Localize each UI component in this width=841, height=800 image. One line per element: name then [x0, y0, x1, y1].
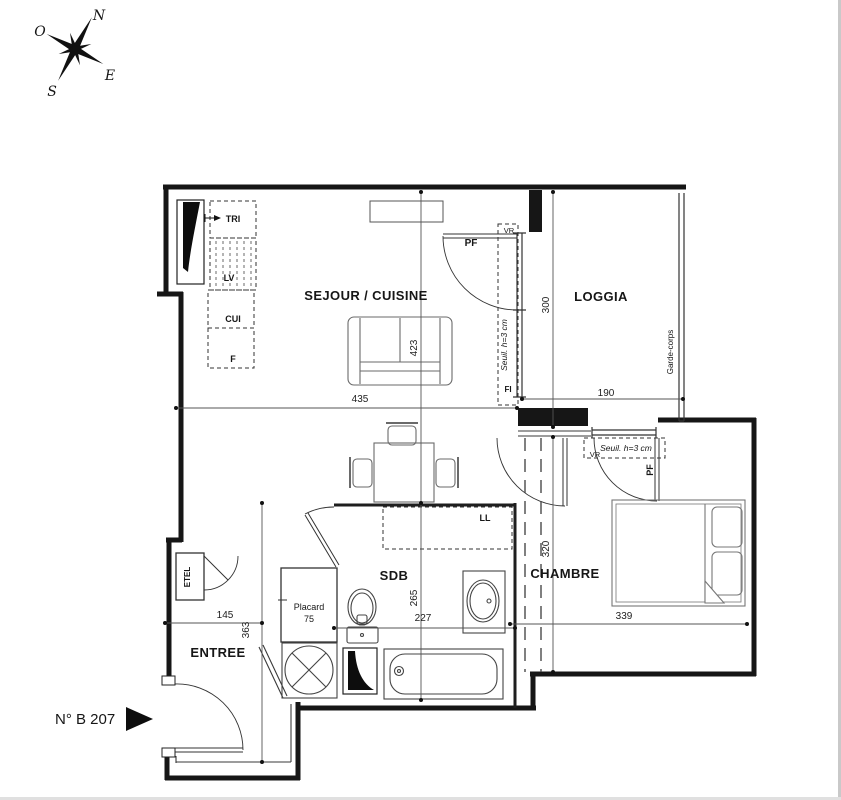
compass-south-label: S — [47, 84, 57, 100]
door-leaf-pf-chambre — [655, 438, 659, 501]
dim-chambre-width: 339 — [616, 611, 633, 622]
room-label-entree: ENTREE — [190, 645, 245, 660]
door-jamb-entrance-top — [162, 676, 175, 685]
garde-corps-railing — [679, 193, 684, 421]
label-tri: TRI — [226, 214, 241, 224]
door-leaf-entrance — [175, 748, 243, 752]
toilet — [347, 589, 378, 643]
door-arc-sdb — [305, 507, 334, 514]
label-vr-sejour: VR — [504, 226, 515, 235]
tri-chute-arrowhead — [214, 215, 221, 221]
ll-zone — [383, 507, 512, 549]
floor-plan-page: N O E S — [0, 0, 841, 800]
door-leaf-etel — [204, 556, 228, 580]
dim-loggia-height: 300 — [541, 296, 552, 313]
tri-chute-icon — [205, 214, 214, 222]
bed — [612, 500, 745, 606]
compass-west-label: O — [34, 24, 46, 40]
window-loggia-chambre — [592, 427, 656, 438]
radiator-sejour — [370, 201, 443, 222]
dim-loggia-width: 190 — [598, 388, 615, 399]
dimension-labels: 423 265 435 300 190 320 339 227 145 363 — [217, 296, 633, 638]
door-jamb-entrance-bottom — [162, 748, 175, 757]
label-seuil-sejour: Seuil. h=3 cm — [499, 319, 509, 371]
compass-north-label: N — [92, 8, 106, 24]
doors — [162, 234, 659, 757]
unit-arrow-icon — [126, 707, 153, 731]
label-ll: LL — [480, 513, 491, 523]
label-f: F — [230, 354, 236, 364]
chambre-soffit-dashes — [525, 438, 541, 672]
washbasin — [463, 571, 505, 633]
label-seuil-chambre: Seuil. h=3 cm — [600, 443, 652, 453]
label-pf-chambre: PF — [645, 464, 655, 476]
label-cui: CUI — [225, 314, 241, 324]
label-etel: ETEL — [183, 567, 192, 588]
dim-sdb-width: 227 — [415, 613, 432, 624]
closets — [176, 553, 337, 642]
blanket-fold — [705, 581, 724, 603]
thin-structure-lines — [176, 431, 591, 763]
unit-marker: N° B 207 — [55, 707, 153, 731]
floor-plan-drawing: N O E S — [0, 0, 841, 800]
label-pf-sejour: PF — [465, 238, 478, 249]
dim-chambre-height: 320 — [541, 540, 552, 557]
window-sejour-loggia — [513, 233, 526, 397]
label-placard-width: 75 — [304, 614, 314, 624]
chair-north — [386, 423, 418, 445]
label-garde-corps: Garde-corps — [666, 330, 675, 374]
label-fi-sejour: FI — [504, 385, 511, 394]
label-placard: Placard — [294, 602, 325, 612]
door-arc-entrance — [175, 684, 243, 750]
room-label-sejour: SEJOUR / CUISINE — [304, 288, 427, 303]
inner-line-bottomleft — [176, 704, 291, 763]
door-leaf-sdb — [305, 513, 339, 567]
threshold-chambre-entry — [518, 431, 591, 436]
duct-shaft-kitchen — [183, 202, 200, 272]
dim-entree-width: 145 — [217, 610, 234, 621]
dashed-zones — [208, 201, 665, 549]
label-lv: LV — [224, 273, 235, 283]
dining-table — [374, 443, 434, 502]
compass-rose: N O E S — [34, 8, 115, 100]
dimension-dots — [163, 190, 749, 764]
outer-walls — [157, 185, 756, 780]
dim-sejour-width: 435 — [352, 394, 369, 405]
sofa — [348, 317, 452, 385]
fixture-labels: TRI LV CUI F LL ETEL Placard 75 Garde-co… — [183, 214, 675, 624]
room-label-chambre: CHAMBRE — [530, 566, 599, 581]
dim-entree-height: 363 — [241, 621, 252, 638]
room-label-loggia: LOGGIA — [574, 289, 628, 304]
vr-zone-sejour — [498, 224, 518, 405]
door-arc-chambre-entry — [497, 438, 565, 506]
wall-loggia-top-pillar — [529, 190, 542, 232]
shower-unit — [282, 643, 337, 698]
door-arc-pf-sejour — [443, 236, 517, 310]
chair-west — [350, 457, 372, 488]
chair-east — [436, 457, 458, 488]
bathtub — [384, 649, 503, 699]
unit-number-label: N° B 207 — [55, 711, 115, 728]
dim-sdb-height: 265 — [409, 589, 420, 606]
pillow-top — [712, 507, 742, 547]
wall-entree-diagonal — [259, 645, 287, 698]
room-label-sdb: SDB — [380, 568, 409, 583]
duct-shaft-bathroom — [348, 651, 374, 690]
pillow-bottom — [712, 552, 742, 595]
door-leaf-chambre-entry — [563, 438, 567, 506]
compass-east-label: E — [104, 68, 115, 84]
dim-sejour-height: 423 — [409, 339, 420, 356]
